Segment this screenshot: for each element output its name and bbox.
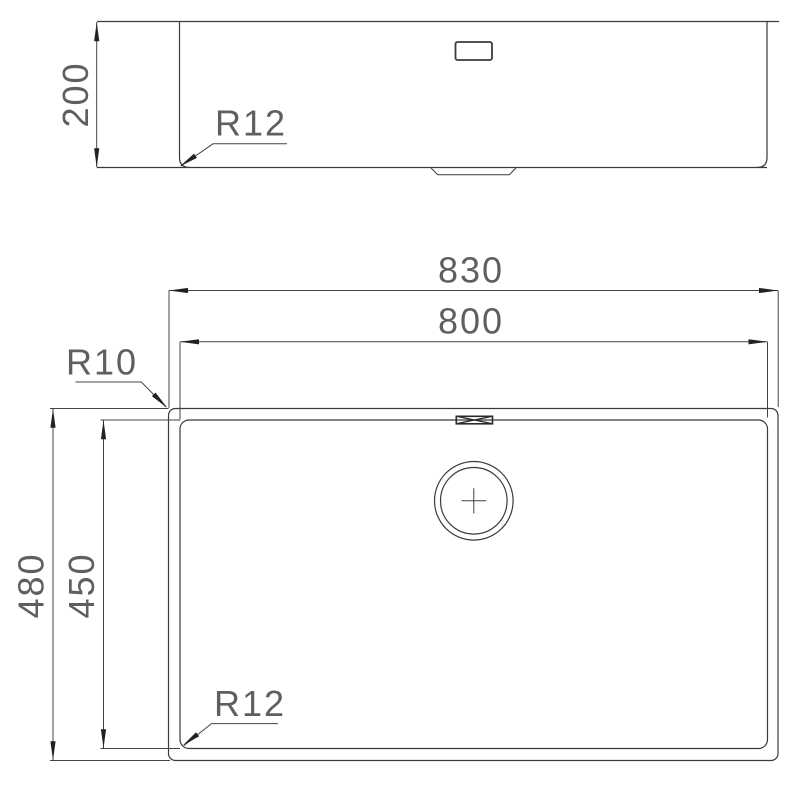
svg-text:200: 200	[55, 61, 96, 127]
svg-text:800: 800	[438, 301, 504, 342]
svg-text:R12: R12	[214, 683, 286, 724]
svg-text:R12: R12	[215, 103, 287, 144]
svg-text:450: 450	[61, 552, 102, 618]
svg-text:480: 480	[11, 552, 52, 618]
svg-text:R10: R10	[66, 342, 138, 383]
svg-text:830: 830	[438, 250, 504, 291]
